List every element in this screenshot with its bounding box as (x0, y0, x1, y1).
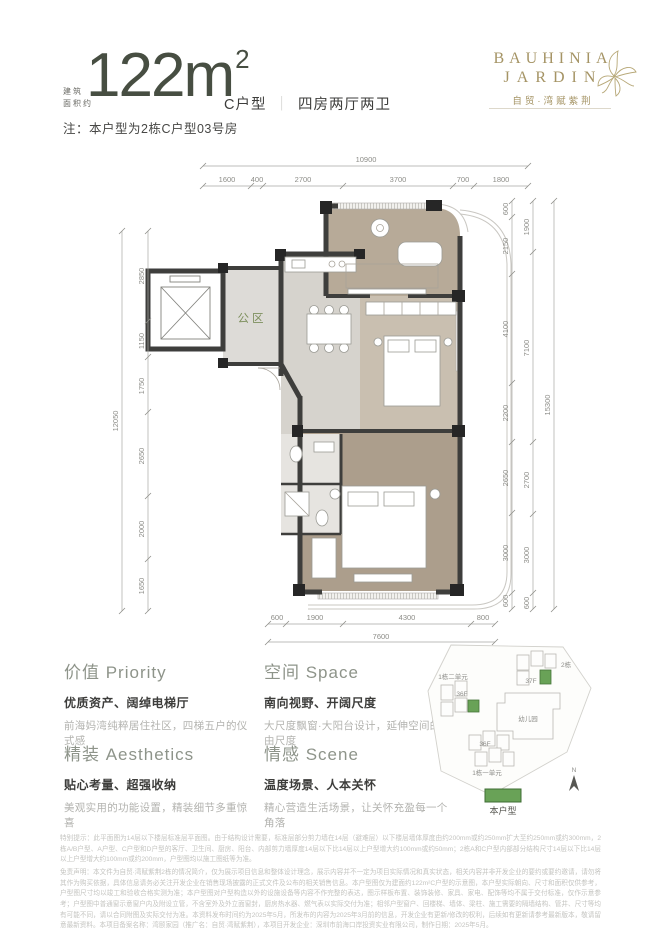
area-superscript: 2 (235, 44, 249, 74)
feature-aesthetics: 精装 Aesthetics 贴心考量、超强收纳 美观实用的功能设置，精装细节多重… (64, 740, 254, 830)
dims-top: 10900 1600 400 2700 3700 700 1800 (200, 155, 531, 189)
svg-text:1750: 1750 (137, 378, 146, 395)
logo-underline (489, 108, 611, 109)
svg-text:12050: 12050 (111, 411, 120, 432)
entry-door-arc (258, 368, 280, 390)
svg-text:2850: 2850 (137, 268, 146, 285)
legend-label: 本户型 (489, 805, 516, 816)
svg-text:2650: 2650 (501, 470, 510, 487)
svg-text:2栋: 2栋 (561, 660, 572, 669)
dims-left: 12050 2850 1150 1750 2650 2000 1650 (111, 228, 151, 614)
svg-text:600: 600 (522, 597, 531, 610)
page: 建筑 面积约 122m2 C户型｜四房两厅两卫 注：本户型为2栋C户型03号房 … (0, 0, 660, 941)
svg-text:N: N (572, 767, 577, 774)
svg-text:600: 600 (501, 595, 510, 608)
svg-text:1150: 1150 (137, 333, 146, 349)
svg-text:7100: 7100 (522, 340, 531, 357)
dims-right: 600 2150 4100 2200 2650 3000 600 1900 71… (501, 198, 557, 612)
unit-divider: ｜ (274, 97, 290, 113)
svg-text:4300: 4300 (399, 613, 416, 622)
svg-text:1600: 1600 (219, 175, 236, 184)
dims-bottom: 600 1900 4300 800 7600 (265, 613, 498, 645)
feature-aesthetics-headline: 贴心考量、超强收纳 (64, 776, 254, 793)
unit-type-line: C户型｜四房两厅两卫 (224, 93, 391, 114)
svg-text:36F: 36F (479, 741, 490, 748)
note-line: 注：本户型为2栋C户型03号房 (63, 118, 238, 137)
public-area-label: 公区 (238, 312, 267, 325)
bauhinia-flower-icon (592, 48, 638, 98)
kitchen-furniture (285, 257, 356, 272)
siteplan-svg: 幼儿园 37F 2栋 36F 1栋二单元 (425, 643, 650, 833)
svg-text:800: 800 (477, 613, 490, 622)
unit-type: C户型 (224, 97, 266, 113)
feature-value-title: 价值 Priority (64, 658, 254, 683)
svg-text:2200: 2200 (501, 405, 510, 422)
svg-text:600: 600 (271, 613, 284, 622)
kindergarten-label: 幼儿园 (518, 714, 538, 723)
area-number: 122m (86, 41, 233, 110)
svg-text:400: 400 (251, 175, 264, 184)
compass-icon: N (569, 767, 579, 791)
svg-text:1800: 1800 (493, 175, 510, 184)
svg-text:1900: 1900 (522, 219, 531, 236)
svg-text:36F: 36F (456, 691, 467, 698)
floorplan-svg: 公区 10900 1600 400 2700 3700 700 1800 120… (108, 146, 568, 646)
unit-layout: 四房两厅两卫 (298, 97, 391, 113)
svg-text:7600: 7600 (373, 632, 390, 641)
svg-text:15300: 15300 (543, 395, 552, 416)
svg-text:1栋二单元: 1栋二单元 (438, 672, 468, 681)
svg-text:1900: 1900 (307, 613, 324, 622)
svg-text:3000: 3000 (501, 545, 510, 562)
svg-text:1650: 1650 (137, 578, 146, 595)
feature-aesthetics-desc: 美观实用的功能设置，精装细节多重惊喜 (64, 800, 254, 830)
feature-aesthetics-title: 精装 Aesthetics (64, 740, 254, 765)
svg-text:2150: 2150 (501, 238, 510, 255)
svg-text:2650: 2650 (137, 448, 146, 465)
feature-value-headline: 优质资产、阔绰电梯厅 (64, 694, 254, 711)
svg-text:10900: 10900 (356, 155, 377, 164)
svg-text:2700: 2700 (522, 472, 531, 489)
svg-text:4100: 4100 (501, 321, 510, 338)
building2-highlight-unit (540, 670, 551, 684)
legend-swatch (485, 789, 521, 802)
disclaimer-special-note: 特别提示：此平面图为14层以下楼层标准层平面图。由于结构设计需要，标准层部分剪力… (60, 834, 601, 866)
svg-text:700: 700 (457, 175, 470, 184)
svg-text:1栋一单元: 1栋一单元 (472, 768, 502, 777)
svg-text:2000: 2000 (137, 521, 146, 538)
svg-text:3700: 3700 (390, 175, 407, 184)
building1-unit2-highlight-unit (468, 700, 479, 712)
svg-text:600: 600 (501, 203, 510, 216)
disclaimer-legal: 免责声明：本文件为自贸·湾赋紫荆2栋的情况简介，仅为展示项目信息和整体设计理念，… (60, 868, 601, 932)
svg-text:37F: 37F (525, 678, 536, 685)
svg-text:2700: 2700 (295, 175, 312, 184)
master-bed-furniture (330, 486, 440, 582)
svg-text:3000: 3000 (522, 547, 531, 564)
dining-table (307, 306, 351, 353)
disclaimer: 特别提示：此平面图为14层以下楼层标准层平面图。由于结构设计需要，标准层部分剪力… (60, 834, 601, 934)
feature-value: 价值 Priority 优质资产、阔绰电梯厅 前海妈湾纯粹居住社区，四梯五户的仪… (64, 658, 254, 748)
